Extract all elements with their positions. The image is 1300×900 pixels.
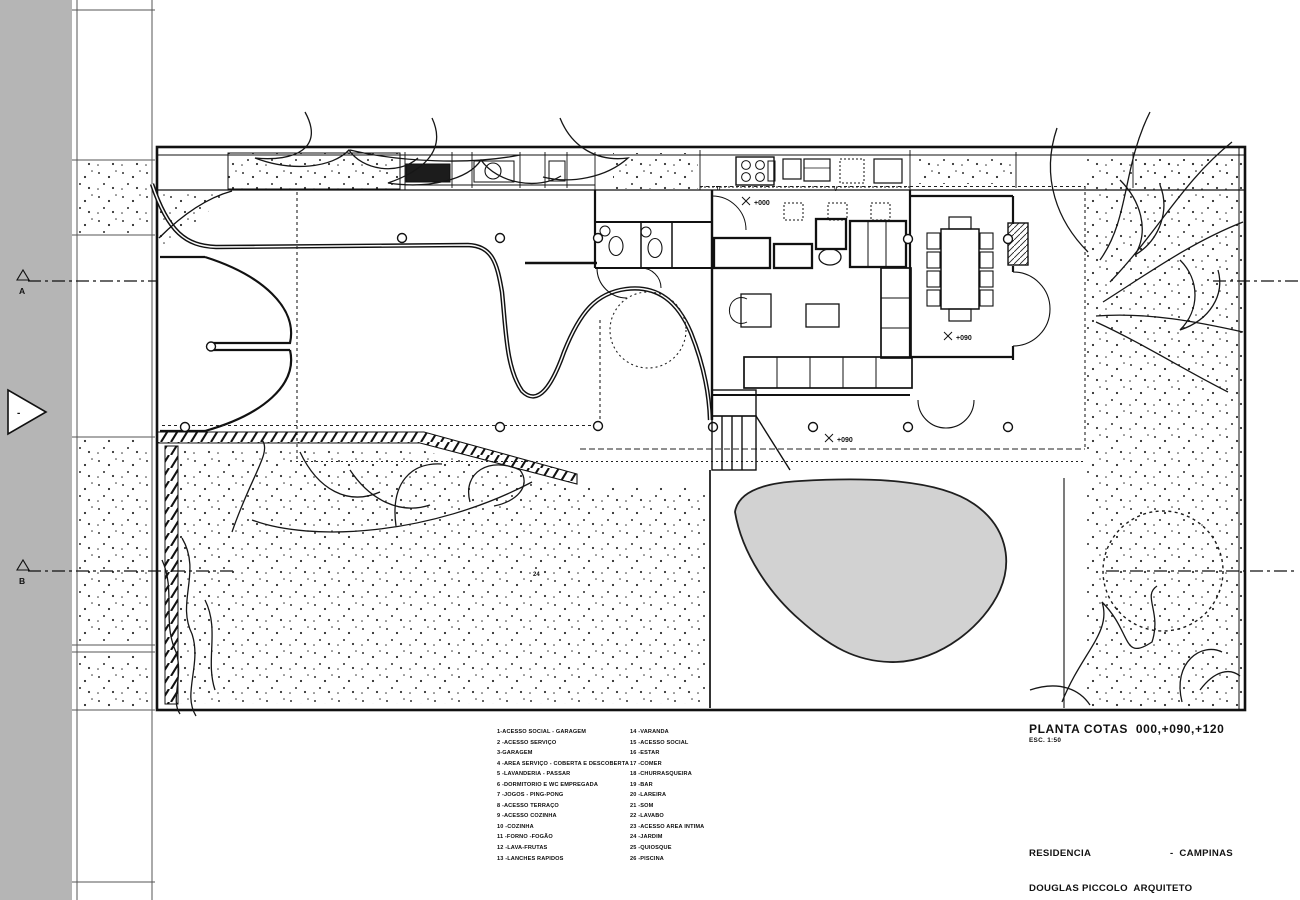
floor-plan-sheet: - A B bbox=[0, 0, 1300, 900]
legend-item: 6 -DORMITORIO E WC EMPREGADA bbox=[497, 780, 647, 791]
legend-column-2: 14 -VARANDA 15 -ACESSO SOCIAL 16 -ESTAR … bbox=[630, 727, 750, 864]
project-city: - CAMPINAS bbox=[1170, 848, 1233, 860]
garden-stair bbox=[712, 390, 790, 470]
legend-item: 20 -LAREIRA bbox=[630, 790, 750, 801]
legend-item: 17 -COMER bbox=[630, 759, 750, 770]
door-swing bbox=[712, 196, 746, 230]
shower-arc bbox=[597, 268, 627, 298]
sidewalk-planters bbox=[79, 162, 151, 708]
legend-item: 15 -ACESSO SOCIAL bbox=[630, 738, 750, 749]
legend-item: 26 -PISCINA bbox=[630, 854, 750, 865]
roof-overhang-dashed bbox=[162, 186, 1085, 462]
dining-table bbox=[941, 229, 979, 309]
legend-column-1: 1-ACESSO SOCIAL - GARAGEM 2 -ACESSO SERV… bbox=[497, 727, 647, 864]
section-b-label: B bbox=[19, 576, 25, 586]
sofa-row bbox=[744, 357, 912, 388]
legend-item: 13 -LANCHES RAPIDOS bbox=[497, 854, 647, 865]
level-kitchen-corridor: +000 bbox=[754, 200, 770, 207]
signature-block: RESIDENCIA - CAMPINAS DOUGLAS PICCOLO AR… bbox=[1029, 825, 1233, 900]
legend-item: 14 -VARANDA bbox=[630, 727, 750, 738]
garden-stipple bbox=[159, 153, 1242, 707]
project-name: RESIDENCIA bbox=[1029, 848, 1091, 860]
level-dining: +090 bbox=[956, 335, 972, 342]
level-terrace: +090 bbox=[837, 437, 853, 444]
legend-item: 5 -LAVANDERIA - PASSAR bbox=[497, 769, 647, 780]
legend-item: 19 -BAR bbox=[630, 780, 750, 791]
legend-item: 12 -LAVA-FRUTAS bbox=[497, 843, 647, 854]
laundry-sink bbox=[485, 163, 501, 179]
swimming-pool bbox=[735, 479, 1006, 662]
legend-item: 2 -ACESSO SERVIÇO bbox=[497, 738, 647, 749]
curved-interior-wall bbox=[160, 257, 291, 431]
legend-item: 11 -FORNO -FOGÃO bbox=[497, 832, 647, 843]
legend-item: 25 -QUIOSQUE bbox=[630, 843, 750, 854]
legend-item: 16 -ESTAR bbox=[630, 748, 750, 759]
section-a-label: A bbox=[19, 286, 25, 296]
architect-line: DOUGLAS PICCOLO ARQUITETO bbox=[1029, 883, 1233, 895]
toilet bbox=[648, 239, 662, 258]
door-swing bbox=[1013, 272, 1050, 309]
kitchen-fixtures bbox=[700, 157, 910, 187]
legend-item: 21 -SOM bbox=[630, 801, 750, 812]
refrigerator bbox=[874, 159, 902, 183]
legend-item: 23 -ACESSO AREA INTIMA bbox=[630, 822, 750, 833]
wave-wall bbox=[152, 184, 710, 420]
legend-item: 22 -LAVABO bbox=[630, 811, 750, 822]
door-swing bbox=[1013, 309, 1050, 346]
plan-title: PLANTA COTAS 000,+090,+120 bbox=[1029, 722, 1224, 736]
street-arrow-mark: - bbox=[17, 408, 20, 419]
street-band bbox=[0, 0, 72, 900]
bathrooms bbox=[595, 190, 746, 420]
armchair bbox=[741, 294, 771, 327]
legend-item: 1-ACESSO SOCIAL - GARAGEM bbox=[497, 727, 647, 738]
sink bbox=[641, 227, 651, 237]
toilet bbox=[609, 237, 623, 256]
living-room bbox=[712, 268, 912, 395]
dining-room bbox=[910, 190, 1050, 428]
laundry-shelf-block bbox=[406, 164, 450, 182]
side-table bbox=[806, 304, 839, 327]
garden-number-label: 24 bbox=[533, 572, 540, 578]
plan-scale: ESC. 1:50 bbox=[1029, 737, 1061, 744]
legend-item: 8 -ACESSO TERRAÇO bbox=[497, 801, 647, 812]
legend-item: 3-GARAGEM bbox=[497, 748, 647, 759]
window-planter bbox=[1008, 223, 1028, 265]
legend-item: 10 -COZINHA bbox=[497, 822, 647, 833]
legend-item: 4 -AREA SERVIÇO - COBERTA E DESCOBERTA bbox=[497, 759, 647, 770]
sofa-column bbox=[881, 268, 911, 358]
legend-item: 9 -ACESSO COZINHA bbox=[497, 811, 647, 822]
legend-item: 7 -JOGOS - PING-PONG bbox=[497, 790, 647, 801]
kitchen-appliance bbox=[783, 159, 801, 179]
kitchen-mark-ti: TI bbox=[716, 186, 721, 192]
kitchen-oven bbox=[804, 159, 830, 181]
service-blocks bbox=[525, 203, 906, 268]
legend-item: 24 -JARDIM bbox=[630, 832, 750, 843]
legend-item: 18 -CHURRASQUEIRA bbox=[630, 769, 750, 780]
